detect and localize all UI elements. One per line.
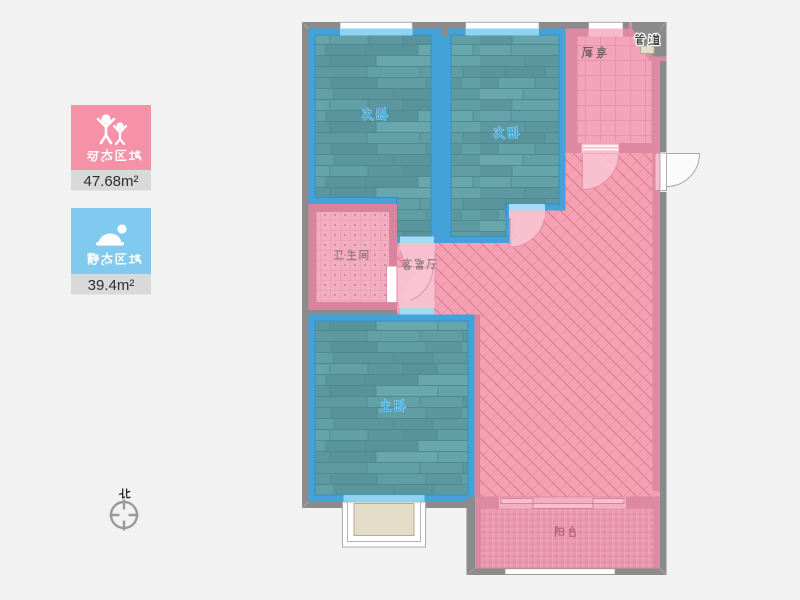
svg-text:39.4m²: 39.4m² [88, 277, 135, 294]
svg-text:47.68m²: 47.68m² [83, 173, 138, 190]
